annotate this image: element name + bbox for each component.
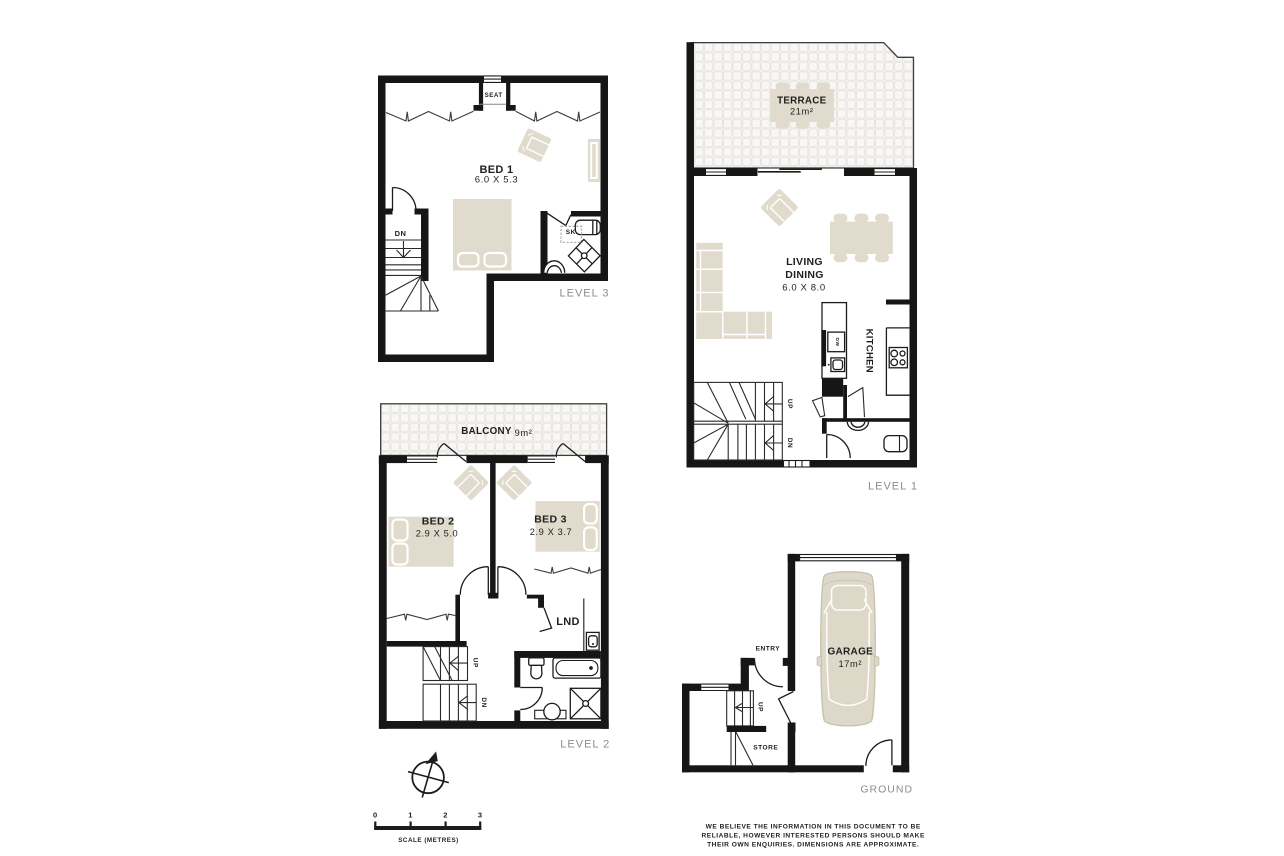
svg-text:21m²: 21m² (790, 107, 814, 117)
svg-text:BALCONY: BALCONY (461, 426, 512, 437)
svg-text:2.9 X 3.7: 2.9 X 3.7 (530, 527, 573, 537)
svg-text:RELIABLE, HOWEVER INTERESTED P: RELIABLE, HOWEVER INTERESTED PERSONS SHO… (702, 833, 925, 840)
svg-text:3: 3 (478, 811, 483, 820)
svg-text:WE BELIEVE THE INFORMATION IN: WE BELIEVE THE INFORMATION IN THIS DOCUM… (706, 824, 921, 831)
svg-text:SEAT: SEAT (485, 92, 503, 99)
svg-text:6.0 X 8.0: 6.0 X 8.0 (782, 282, 825, 293)
svg-text:1: 1 (408, 811, 413, 820)
svg-text:GARAGE: GARAGE (827, 647, 873, 658)
svg-text:LEVEL 3: LEVEL 3 (559, 288, 609, 300)
svg-text:9m²: 9m² (515, 428, 533, 438)
svg-text:TERRACE: TERRACE (777, 96, 827, 107)
svg-text:6.0 X 5.3: 6.0 X 5.3 (475, 174, 518, 185)
svg-text:SCALE (METRES): SCALE (METRES) (398, 837, 459, 844)
svg-text:UP: UP (786, 399, 793, 409)
svg-text:DINING: DINING (785, 269, 824, 281)
svg-text:0: 0 (373, 811, 378, 820)
svg-text:LIVING: LIVING (786, 256, 823, 268)
svg-text:KITCHEN: KITCHEN (864, 329, 875, 373)
svg-text:DN: DN (480, 697, 487, 707)
svg-text:BED 2: BED 2 (422, 516, 454, 528)
svg-text:2.9 X 5.0: 2.9 X 5.0 (416, 528, 459, 538)
svg-text:SK: SK (566, 229, 576, 236)
svg-text:17m²: 17m² (839, 659, 863, 669)
svg-text:DW: DW (834, 338, 840, 347)
svg-text:2: 2 (443, 811, 448, 820)
svg-text:UP: UP (471, 658, 478, 668)
svg-text:THEIR OWN ENQUIRIES. DIMENSION: THEIR OWN ENQUIRIES. DIMENSIONS ARE APPR… (707, 842, 919, 849)
svg-text:DN: DN (395, 229, 407, 238)
svg-text:LEVEL 2: LEVEL 2 (560, 739, 610, 751)
svg-text:LEVEL 1: LEVEL 1 (868, 481, 918, 493)
svg-text:UP: UP (757, 702, 764, 712)
svg-text:STORE: STORE (753, 745, 778, 752)
svg-text:BED 3: BED 3 (534, 514, 566, 526)
svg-text:LND: LND (556, 616, 580, 628)
svg-text:ENTRY: ENTRY (756, 646, 781, 653)
svg-text:DN: DN (786, 438, 793, 448)
svg-text:GROUND: GROUND (860, 784, 913, 796)
